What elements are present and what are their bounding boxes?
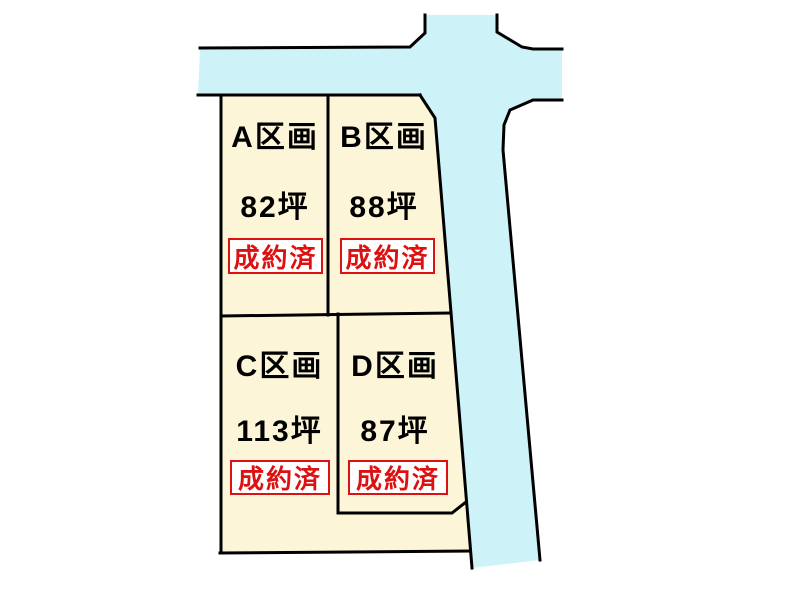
plot-a-status-badge: 成約済 bbox=[228, 238, 323, 274]
plot-a-area: 82坪 bbox=[222, 192, 328, 224]
road-top-outline bbox=[200, 15, 425, 48]
plot-b-status-label: 成約済 bbox=[345, 238, 429, 275]
parcel-bottom-line bbox=[220, 551, 470, 553]
plot-d-status-badge: 成約済 bbox=[348, 460, 448, 495]
plot-c-status-badge: 成約済 bbox=[230, 460, 330, 495]
plot-a-name: A区画 bbox=[222, 122, 328, 154]
plot-b-status-badge: 成約済 bbox=[340, 238, 435, 274]
plot-layout-diagram: A区画 82坪 成約済 B区画 88坪 成約済 C区画 113坪 成約済 D区画… bbox=[0, 0, 800, 600]
plot-c-area: 113坪 bbox=[221, 416, 338, 448]
plot-d-status-label: 成約済 bbox=[356, 459, 440, 496]
site-plan-drawing bbox=[0, 0, 800, 600]
plot-d-area: 87坪 bbox=[338, 416, 452, 448]
plot-c-status-label: 成約済 bbox=[238, 459, 322, 496]
plot-a-status-label: 成約済 bbox=[233, 238, 317, 275]
plot-b-name: B区画 bbox=[328, 122, 440, 154]
plot-b-area: 88坪 bbox=[328, 192, 440, 224]
plot-d-name: D区画 bbox=[338, 351, 452, 383]
plot-c-name: C区画 bbox=[221, 351, 338, 383]
